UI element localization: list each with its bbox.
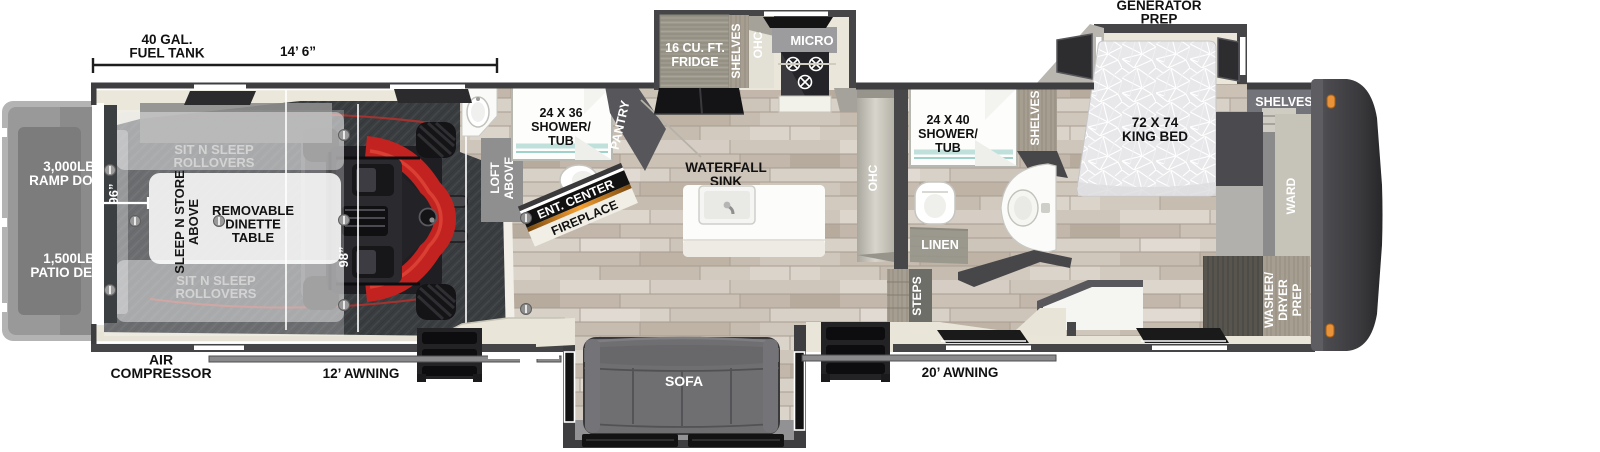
svg-text:SOFA: SOFA [665,373,703,389]
svg-text:WASHER/: WASHER/ [1262,271,1276,328]
svg-text:TUB: TUB [935,141,961,155]
svg-text:TUB: TUB [548,134,574,148]
svg-text:96”: 96” [106,184,121,205]
svg-text:PREP: PREP [1290,284,1304,317]
svg-text:TABLE: TABLE [232,230,275,245]
svg-text:OHC: OHC [751,31,765,58]
svg-text:SHOWER/: SHOWER/ [918,127,978,141]
svg-text:LOFT: LOFT [488,162,502,194]
svg-text:14’ 6”: 14’ 6” [280,44,316,59]
svg-text:72 X 74: 72 X 74 [1132,115,1179,130]
svg-text:PREP: PREP [1141,12,1178,27]
svg-text:20’ AWNING: 20’ AWNING [922,365,999,380]
svg-text:WATERFALL: WATERFALL [685,160,767,175]
svg-text:1,500LB.: 1,500LB. [43,251,99,266]
svg-text:ROLLOVERS: ROLLOVERS [176,286,257,301]
svg-text:LINEN: LINEN [921,238,959,252]
svg-text:98”: 98” [336,247,351,268]
svg-text:ABOVE: ABOVE [502,157,516,200]
svg-text:SHOWER/: SHOWER/ [531,120,591,134]
svg-text:FRIDGE: FRIDGE [671,55,718,69]
svg-text:24 X 36: 24 X 36 [539,106,582,120]
svg-text:MICRO: MICRO [790,33,833,48]
svg-text:FUEL TANK: FUEL TANK [129,46,204,61]
svg-text:SHELVES: SHELVES [729,23,743,78]
svg-text:12’ AWNING: 12’ AWNING [323,366,400,381]
svg-text:ABOVE: ABOVE [186,199,201,246]
svg-text:ROLLOVERS: ROLLOVERS [174,155,255,170]
svg-text:16 CU. FT.: 16 CU. FT. [665,41,725,55]
svg-text:COMPRESSOR: COMPRESSOR [110,365,211,381]
svg-text:STEPS: STEPS [910,276,924,315]
svg-text:SHELVES: SHELVES [1028,90,1042,145]
svg-text:24 X 40: 24 X 40 [926,113,969,127]
svg-text:OHC: OHC [866,164,880,191]
svg-text:WARD: WARD [1284,177,1298,214]
svg-text:SHELVES: SHELVES [1255,95,1312,109]
svg-text:3,000LB.: 3,000LB. [43,159,99,174]
svg-text:KING BED: KING BED [1122,129,1188,144]
svg-text:SLEEP N STORE: SLEEP N STORE [172,170,187,274]
svg-text:DRYER: DRYER [1276,279,1290,321]
